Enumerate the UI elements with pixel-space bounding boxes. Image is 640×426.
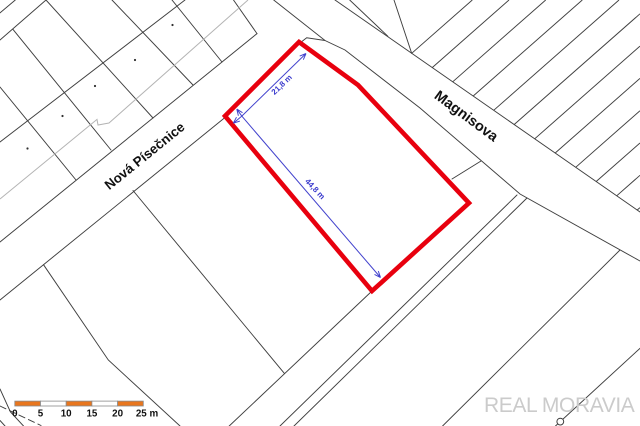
svg-text:20: 20 (112, 409, 123, 420)
svg-text:REAL MORAVIA: REAL MORAVIA (484, 394, 635, 417)
svg-text:25 m: 25 m (136, 409, 159, 420)
svg-text:5: 5 (38, 409, 44, 420)
svg-text:10: 10 (61, 409, 72, 420)
svg-text:0: 0 (12, 409, 18, 420)
svg-text:15: 15 (86, 409, 97, 420)
